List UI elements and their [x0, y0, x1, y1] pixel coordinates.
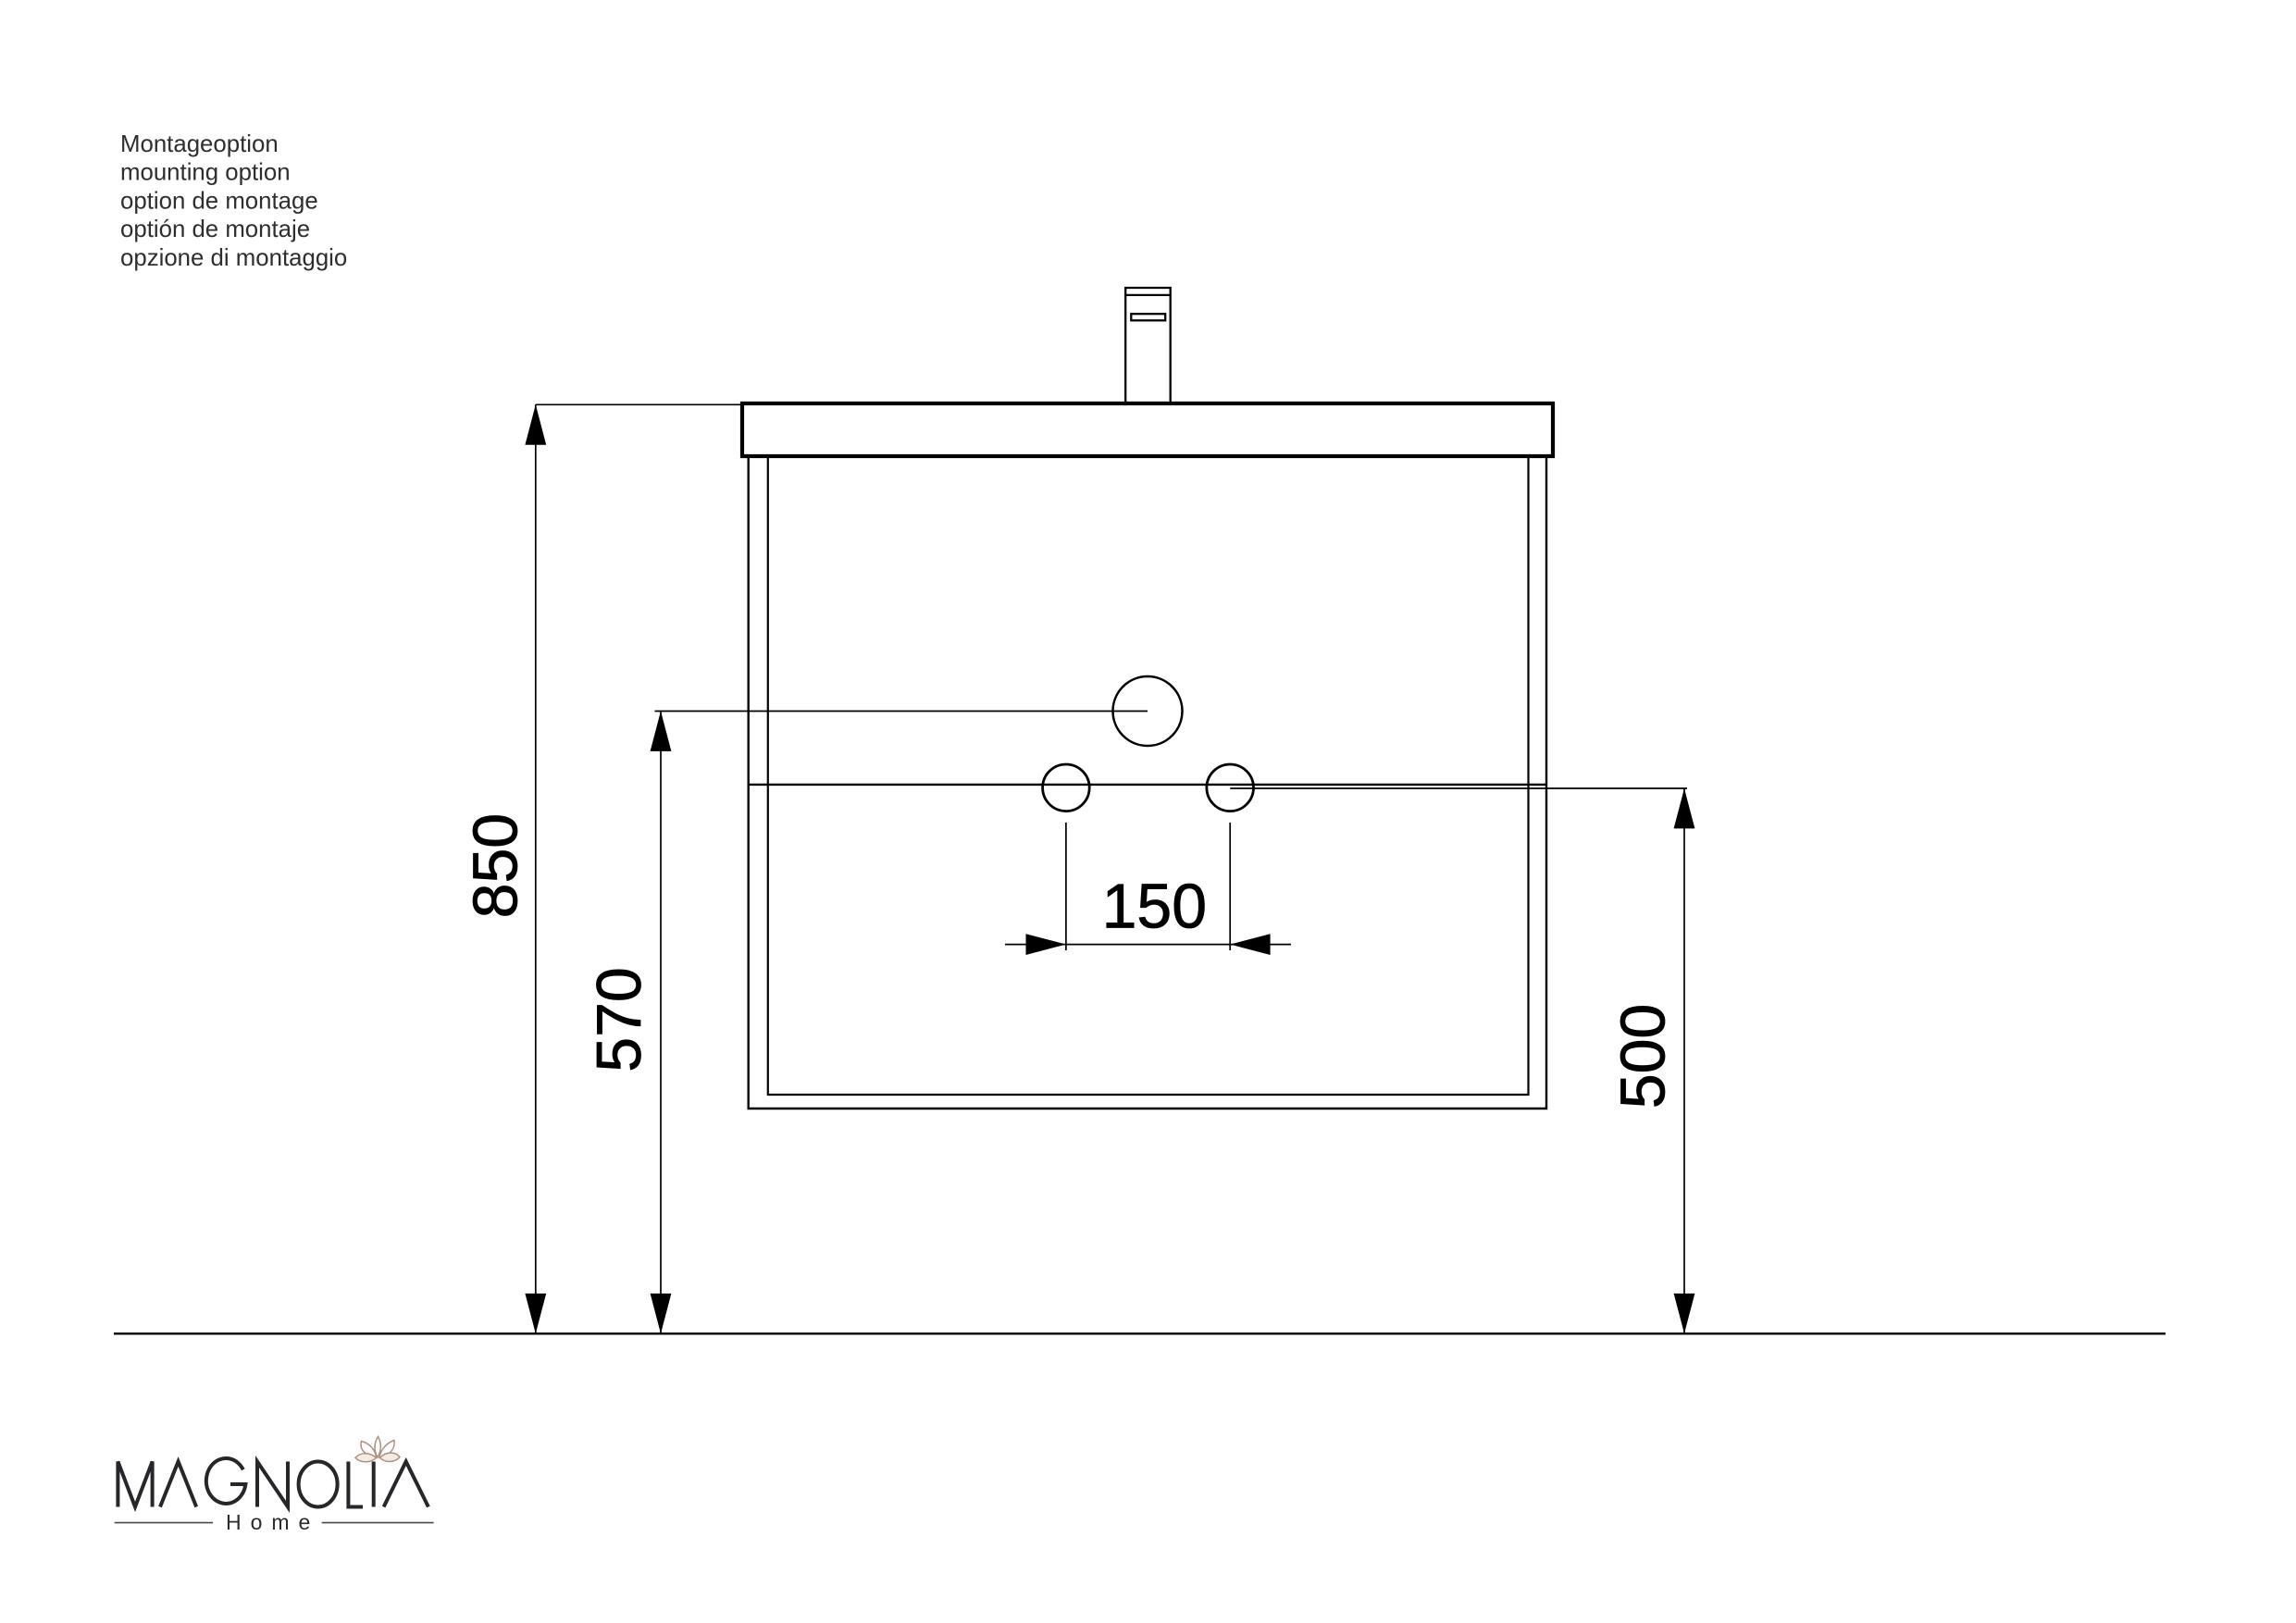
svg-text:option de montage: option de montage [120, 188, 318, 214]
svg-text:Montageoption: Montageoption [120, 131, 279, 157]
svg-text:optión de montaje: optión de montaje [120, 217, 310, 242]
svg-text:opzione di montaggio: opzione di montaggio [120, 245, 347, 271]
svg-text:Home: Home [226, 1510, 319, 1534]
svg-text:mounting option: mounting option [120, 160, 291, 186]
svg-text:570: 570 [584, 967, 654, 1072]
svg-text:150: 150 [1102, 871, 1207, 941]
svg-text:500: 500 [1608, 1004, 1679, 1109]
svg-text:850: 850 [461, 813, 531, 918]
